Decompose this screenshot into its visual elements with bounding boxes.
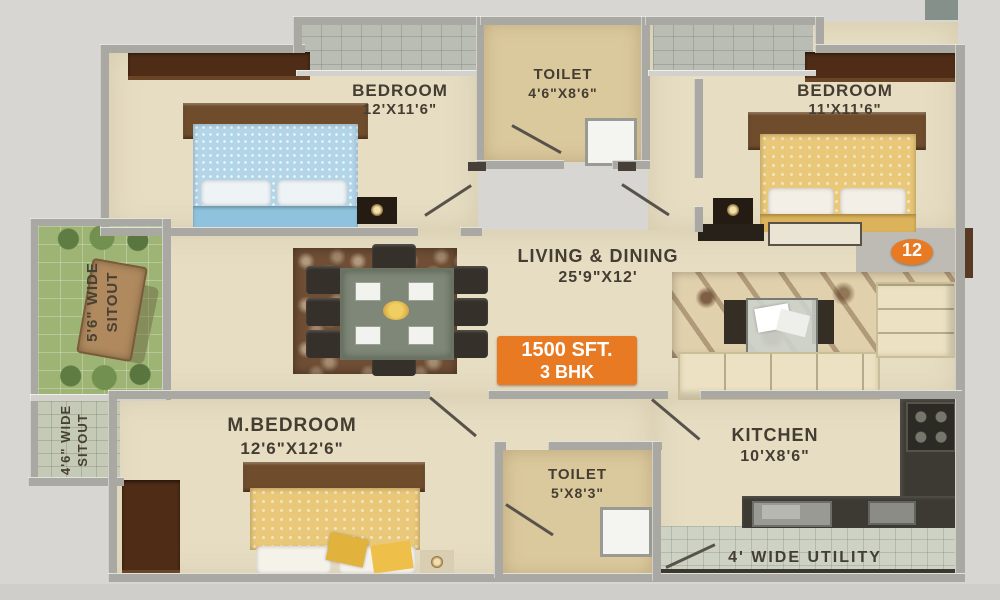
wardrobe-master <box>122 480 180 574</box>
room-dims: 12'X11'6" <box>300 101 500 120</box>
wall <box>480 16 650 25</box>
dining-chair <box>452 330 488 358</box>
stove <box>906 402 956 452</box>
label-sitout-lower: 4'6" WIDE SITOUT <box>58 385 98 495</box>
wall <box>108 390 430 399</box>
wall <box>694 206 703 232</box>
room-dims: 10'X8'6" <box>665 447 885 467</box>
wall <box>293 16 485 25</box>
kitchen-appliance <box>868 501 916 525</box>
wall <box>100 44 305 53</box>
wall-stub <box>618 162 636 171</box>
dining-chair <box>306 330 342 358</box>
dining-chair <box>306 298 342 326</box>
room-dims: 25'9"X12' <box>478 268 718 288</box>
room-dims: 12'6"X12'6" <box>172 438 412 459</box>
dining-chair <box>452 298 488 326</box>
label-sitout-upper: 5'6" WIDE SITOUT <box>83 217 127 387</box>
label-utility: 4' WIDE UTILITY <box>660 548 950 568</box>
washbasin <box>600 507 652 557</box>
lamp <box>371 204 383 216</box>
wall <box>460 227 482 236</box>
wall <box>476 160 564 169</box>
wall <box>694 78 703 178</box>
terrace-top-right <box>653 22 813 72</box>
room-name: 4' WIDE UTILITY <box>660 548 950 568</box>
area-badge: 1500 SFT. 3 BHK <box>497 336 637 385</box>
sofa-right <box>876 282 956 358</box>
plate <box>408 326 434 345</box>
floor-plan: BEDROOM 12'X11'6" TOILET 4'6"X8'6" BEDRO… <box>0 0 1000 600</box>
area-badge-bhk: 3 BHK <box>497 362 637 383</box>
room-dims: 4'6"X8'6" <box>488 85 638 103</box>
label-bedroom-top-right: BEDROOM 11'X11'6" <box>745 80 945 120</box>
console-table <box>768 222 862 246</box>
wall-stub <box>468 162 486 171</box>
wardrobe-bedroom-top-left <box>128 52 310 80</box>
room-dims: 5'X8'3" <box>505 485 650 503</box>
wall <box>955 44 965 582</box>
cushion <box>370 540 414 573</box>
page-bottom-band <box>0 584 1000 600</box>
wall <box>100 227 418 236</box>
washbasin <box>585 118 637 166</box>
wall <box>494 441 506 450</box>
wall <box>645 16 823 25</box>
bed-foot-top-left <box>193 206 358 228</box>
wall <box>488 390 668 399</box>
wall <box>641 16 650 168</box>
room-name: KITCHEN <box>665 424 885 447</box>
label-master-bedroom: M.BEDROOM 12'6"X12'6" <box>172 414 412 459</box>
plate <box>408 282 434 301</box>
wardrobe-bedroom-top-right <box>805 52 957 82</box>
wall <box>100 44 109 236</box>
lamp <box>727 204 739 216</box>
wall <box>108 390 117 582</box>
room-name: TOILET <box>505 466 650 485</box>
dining-chair <box>306 266 342 294</box>
plate <box>355 326 381 345</box>
sitout-line: 5'6" WIDE <box>83 217 103 387</box>
room-name: M.BEDROOM <box>172 414 412 438</box>
wall <box>815 44 965 53</box>
pillow <box>768 188 834 216</box>
wall <box>494 448 503 578</box>
pillow <box>256 546 332 574</box>
room-name: LIVING & DINING <box>478 245 718 268</box>
room-name: BEDROOM <box>300 80 500 101</box>
pillow <box>277 180 347 206</box>
unit-number: 12 <box>902 240 922 260</box>
wall <box>162 218 171 400</box>
terrace-top-left <box>301 22 476 74</box>
pillow <box>840 188 906 216</box>
room-dims: 11'X11'6" <box>745 101 945 120</box>
plate <box>355 282 381 301</box>
label-living-dining: LIVING & DINING 25'9"X12' <box>478 245 718 288</box>
label-bedroom-top-left: BEDROOM 12'X11'6" <box>300 80 500 120</box>
duct-top-right-corner <box>925 0 958 20</box>
room-name: TOILET <box>488 66 638 85</box>
dining-chair <box>372 244 416 270</box>
lamp <box>431 556 443 568</box>
sitout-line: 4'6" WIDE <box>58 385 75 495</box>
room-name: BEDROOM <box>745 80 945 101</box>
pillow <box>201 180 271 206</box>
label-toilet-top: TOILET 4'6"X8'6" <box>488 66 638 102</box>
label-kitchen: KITCHEN 10'X8'6" <box>665 424 885 467</box>
tv-unit <box>698 224 764 241</box>
table-centerpiece <box>383 301 409 320</box>
wall <box>700 390 962 399</box>
wall <box>108 573 965 582</box>
sitout-line: SITOUT <box>103 217 123 387</box>
label-toilet-bottom: TOILET 5'X8'3" <box>505 466 650 502</box>
wall <box>30 218 38 486</box>
side-table <box>724 300 746 344</box>
wall <box>548 441 662 450</box>
kitchen-sink-basin <box>762 505 800 519</box>
unit-number-badge: 12 <box>891 239 933 265</box>
sitout-line: SITOUT <box>75 385 92 495</box>
area-badge-sft: 1500 SFT. <box>497 339 637 362</box>
wall <box>648 70 816 76</box>
wall <box>296 70 478 76</box>
